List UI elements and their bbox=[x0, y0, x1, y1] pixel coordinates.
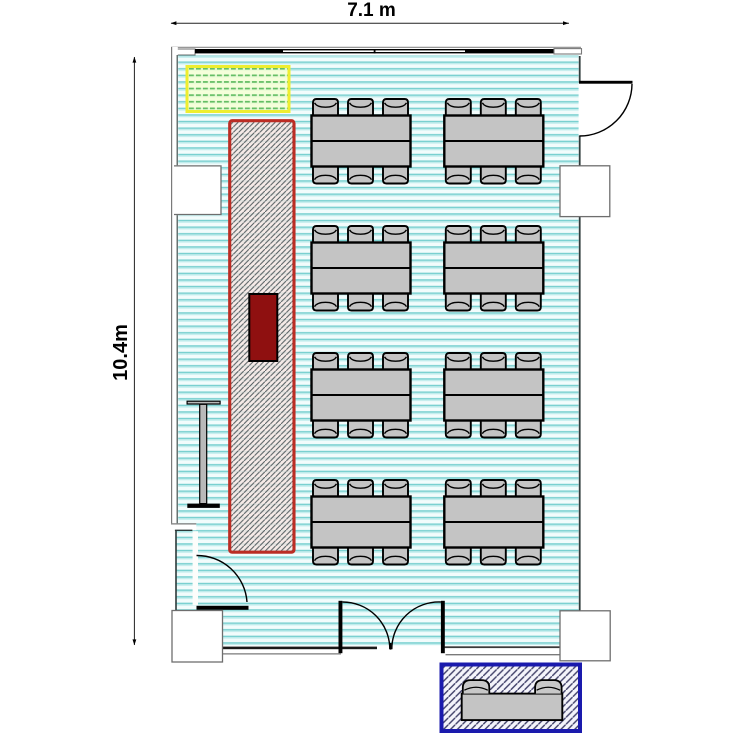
svg-text:7.1 m: 7.1 m bbox=[347, 0, 396, 21]
svg-text:10.4m: 10.4m bbox=[110, 324, 132, 381]
